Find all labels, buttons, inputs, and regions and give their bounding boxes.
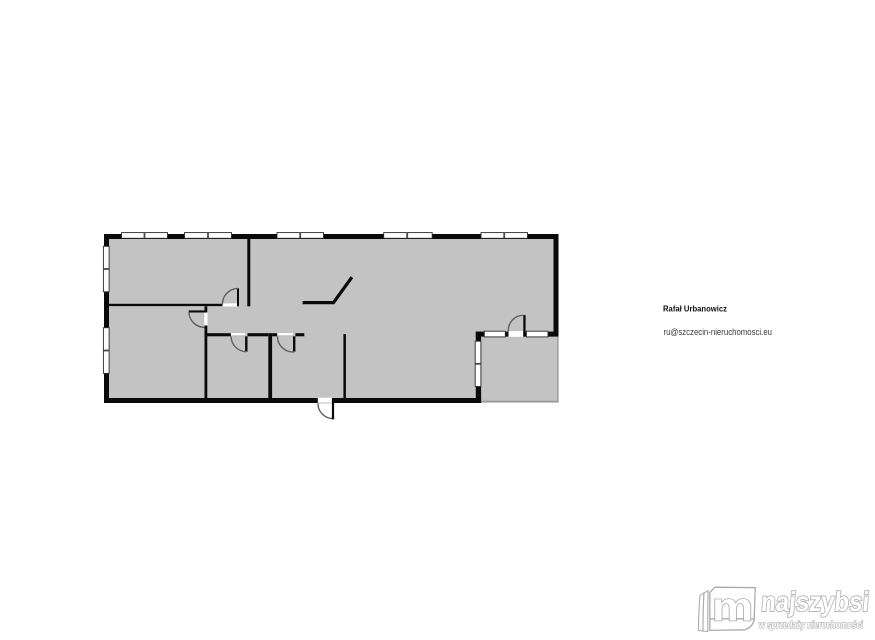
svg-text:m: m bbox=[712, 586, 753, 630]
svg-text:najszybsi: najszybsi bbox=[760, 586, 871, 617]
svg-text:ru@szczecin-nieruchomosci.eu: ru@szczecin-nieruchomosci.eu bbox=[664, 327, 773, 337]
svg-text:Rafał Urbanowicz: Rafał Urbanowicz bbox=[663, 303, 727, 313]
svg-text:w sprzedaży nieruchomości: w sprzedaży nieruchomości bbox=[758, 620, 864, 631]
